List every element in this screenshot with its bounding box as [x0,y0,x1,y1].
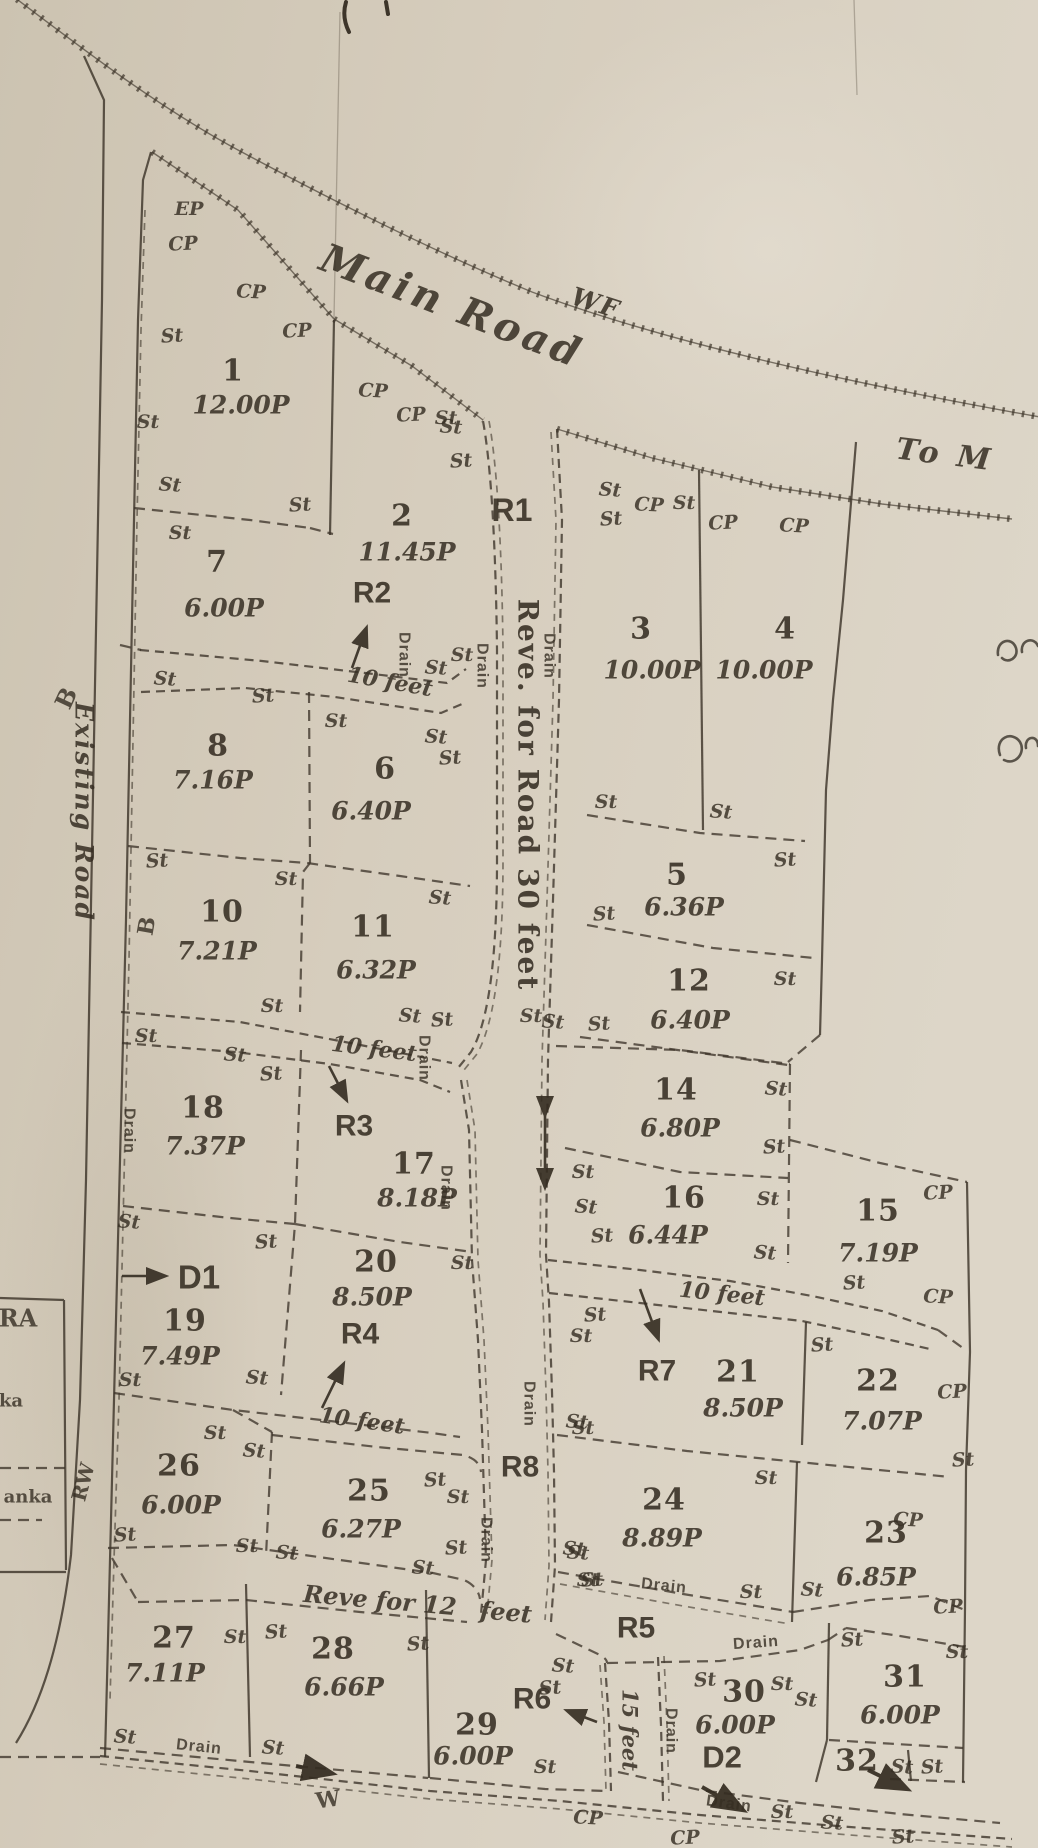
cp-marker-5: CP [634,493,665,517]
st-marker-44: St [753,1241,777,1265]
st-marker-64: St [755,1467,778,1489]
st-marker-83: St [890,1755,914,1779]
plot-19-number: 19 [163,1304,207,1339]
plot-14-number: 14 [654,1073,698,1108]
plot-25-area: 6.27P [321,1515,402,1544]
drain-label-10: Drain [733,1633,780,1653]
plot-18-area: 7.37P [165,1132,246,1161]
st-marker-40: St [572,1161,595,1183]
plot-5-area: 6.36P [644,893,725,922]
st-marker-87: St [891,1825,915,1848]
plot-29-number: 29 [455,1708,499,1743]
st-marker-73: St [577,1569,600,1591]
cp-marker-13: CP [573,1806,604,1830]
plot-19-area: 7.49P [140,1342,221,1371]
plot-2-number: 2 [391,499,413,534]
st-marker-37: St [451,1252,474,1274]
st-marker-45: St [842,1271,866,1295]
plot-23-area: 6.85P [836,1563,917,1592]
cp-marker-12: CP [933,1595,964,1619]
cp-marker-0: CP [168,232,199,256]
st-marker-48: St [583,1303,607,1327]
plot-6-area: 6.40P [331,797,412,826]
drain-label-3: Drain [416,1035,433,1081]
st-marker-13: St [325,710,348,732]
reservation-label-R8: R8 [501,1451,539,1484]
st-marker-10: St [673,492,696,514]
plot-20-area: 8.50P [331,1283,413,1312]
reservation-label-R7: R7 [638,1355,676,1388]
plot-5-number: 5 [666,858,688,893]
cp-marker-9: CP [923,1285,954,1309]
st-marker-14: St [424,725,448,749]
reservation-label-R4: R4 [341,1318,380,1351]
st-marker-15: St [438,746,462,770]
st-marker-43: St [757,1188,780,1210]
plot-8-area: 7.16P [173,766,254,795]
plot-15-area: 7.19P [838,1239,919,1268]
st-marker-39: St [762,1135,786,1159]
st-marker-3: St [288,493,312,517]
st-marker-57: St [423,1468,447,1492]
st-marker-41: St [574,1195,598,1219]
plot-27-area: 7.11P [125,1659,206,1688]
reservation-label-R5: R5 [617,1612,655,1645]
st-marker-47: St [245,1366,269,1390]
plot-8-number: 8 [207,729,229,764]
plot-10-number: 10 [200,895,244,930]
plot-7-number: 7 [206,545,228,580]
st-marker-77: St [261,1736,285,1760]
plot-12-area: 6.40P [650,1006,731,1035]
st-marker-19: St [275,868,298,890]
st-marker-7: St [435,407,458,429]
cp-marker-11: CP [893,1508,924,1532]
st-marker-85: St [771,1801,794,1823]
st-marker-22: St [595,791,618,813]
plot-4-area: 10.00P [715,656,813,685]
cp-marker-8: CP [923,1181,954,1205]
road-label-reve-12-feet: feet [477,1595,533,1629]
st-marker-60: St [444,1536,468,1560]
cp-marker-6: CP [708,511,739,535]
st-marker-63: St [951,1448,975,1472]
st-marker-4: St [169,522,192,544]
plot-22-number: 22 [856,1364,900,1399]
edge-label-w-bottom: W [313,1785,342,1814]
st-marker-17: St [424,656,448,680]
plot-16-area: 6.44P [628,1221,709,1250]
plot-14-area: 6.80P [640,1114,721,1143]
plot-21-area: 8.50P [702,1394,784,1423]
drain-label-0: Drain [396,632,413,678]
st-marker-23: St [709,800,733,824]
cp-marker-2: CP [282,319,313,343]
st-marker-55: St [236,1535,259,1557]
st-marker-30: St [259,1062,283,1086]
plot-17-number: 17 [392,1147,436,1182]
st-marker-53: St [242,1439,266,1463]
reservation-label-R3: R3 [335,1110,373,1143]
plot-28-number: 28 [311,1632,355,1667]
paper-highlight [500,0,1038,500]
st-marker-86: St [820,1811,844,1835]
st-marker-20: St [428,886,452,910]
plot-32-number: 32 [835,1744,879,1779]
plot-27-number: 27 [152,1621,196,1656]
road-label-fifteen-feet: 15 feet [618,1689,643,1771]
st-marker-32: St [541,1010,565,1034]
survey-plan-canvas: 112.00P211.45P310.00P410.00P56.36P66.40P… [0,0,1038,1848]
plot-4-number: 4 [774,612,796,647]
st-marker-12: St [251,684,275,708]
st-marker-33: St [587,1012,611,1036]
st-marker-2: St [158,473,182,497]
edge-label-ra: RA [0,1304,38,1333]
st-marker-68: St [800,1578,824,1602]
st-marker-79: St [771,1673,794,1695]
plot-24-area: 8.89P [621,1524,703,1553]
st-marker-71: St [113,1725,137,1749]
st-marker-49: St [570,1325,593,1347]
st-marker-11: St [153,667,177,691]
cp-marker-10: CP [937,1380,968,1404]
st-marker-1: St [137,411,160,433]
st-marker-69: St [264,1620,288,1644]
st-marker-58: St [447,1486,470,1508]
drain-label-5: Drain [121,1108,138,1154]
drain-label-2: Drain [541,633,558,679]
st-marker-29: St [223,1043,247,1067]
st-marker-35: St [117,1210,141,1234]
plot-2-area: 11.45P [358,538,456,567]
st-marker-61: St [572,1417,595,1439]
plot-24-number: 24 [642,1483,686,1518]
cp-marker-14: CP [670,1826,701,1848]
cp-marker-1: CP [236,280,267,304]
st-marker-28: St [135,1025,158,1047]
plot-26-number: 26 [157,1449,201,1484]
plot-11-number: 11 [351,910,395,945]
st-marker-54: St [113,1523,137,1547]
st-marker-65: St [562,1537,586,1561]
plot-29-area: 6.00P [433,1742,514,1771]
plot-30-area: 6.00P [695,1711,776,1740]
plot-26-area: 6.00P [141,1491,222,1520]
cp-marker-3: CP [358,379,389,403]
plot-20-number: 20 [354,1245,398,1280]
st-marker-84: St [920,1755,944,1779]
plot-21-number: 21 [716,1355,760,1390]
plot-12-number: 12 [667,964,711,999]
st-marker-59: St [411,1556,435,1580]
edge-label-ka: ka [0,1391,23,1412]
plot-22-area: 7.07P [842,1407,923,1436]
plot-11-area: 6.32P [336,956,417,985]
st-marker-25: St [261,995,284,1017]
st-marker-16: St [451,644,474,666]
st-marker-36: St [254,1230,278,1254]
st-marker-75: St [538,1676,562,1700]
st-marker-31: St [520,1005,543,1027]
st-marker-76: St [534,1756,557,1778]
ep-marker-0: EP [174,198,204,220]
st-marker-46: St [119,1369,142,1391]
st-marker-80: St [794,1688,818,1712]
road-label-r1-reservation-text: Reve. for Road 30 feet [512,599,545,992]
st-marker-81: St [840,1628,864,1652]
st-marker-26: St [398,1004,422,1028]
plot-3-area: 10.00P [603,656,701,685]
edge-label-anka: anka [4,1487,53,1508]
plot-7-area: 6.00P [184,594,265,623]
st-marker-18: St [145,849,169,873]
st-marker-24: St [773,848,797,872]
st-marker-72: St [406,1632,430,1656]
plot-1-area: 12.00P [192,391,290,420]
plot-30-number: 30 [722,1675,766,1710]
st-marker-82: St [946,1641,969,1663]
plot-31-area: 6.00P [860,1701,941,1730]
drain-label-7: Drain [478,1517,495,1563]
cp-marker-7: CP [779,514,810,538]
plot-16-number: 16 [662,1181,706,1216]
reservation-label-D1: D1 [178,1259,220,1296]
st-marker-0: St [160,324,184,348]
st-marker-51: St [810,1333,834,1357]
st-marker-21: St [592,902,616,926]
st-marker-78: St [693,1668,717,1692]
plot-1-number: 1 [222,354,244,389]
plot-25-number: 25 [347,1474,391,1509]
st-marker-56: St [275,1541,299,1565]
st-marker-52: St [204,1422,227,1444]
drain-label-4: Drain [438,1165,455,1211]
reservation-label-R2: R2 [353,577,391,610]
st-marker-70: St [224,1626,247,1648]
st-marker-74: St [551,1654,575,1678]
survey-plan-scan: 112.00P211.45P310.00P410.00P56.36P66.40P… [0,0,1038,1848]
st-marker-67: St [740,1581,763,1603]
drain-label-8: Drain [663,1708,680,1754]
road-label-existing-road: Existing Road [70,701,99,922]
st-marker-42: St [590,1224,614,1248]
st-marker-9: St [599,507,623,531]
plot-3-number: 3 [630,612,652,647]
plot-15-number: 15 [856,1194,900,1229]
reservation-label-D2: D2 [702,1740,742,1775]
st-marker-6: St [449,449,473,473]
st-marker-27: St [430,1008,454,1032]
drain-label-6: Drain [521,1381,538,1427]
pen-stroke-2 [386,2,388,14]
plot-10-area: 7.21P [177,937,258,966]
plot-31-number: 31 [883,1660,927,1695]
drain-label-1: Drain [474,643,491,689]
st-marker-8: St [598,478,622,502]
st-marker-34: St [774,968,797,990]
st-marker-38: St [764,1077,788,1101]
cp-marker-4: CP [396,403,427,427]
plot-18-number: 18 [181,1091,225,1126]
plot-6-number: 6 [374,752,396,787]
plot-28-area: 6.66P [304,1673,385,1702]
reservation-label-R1: R1 [492,492,533,528]
